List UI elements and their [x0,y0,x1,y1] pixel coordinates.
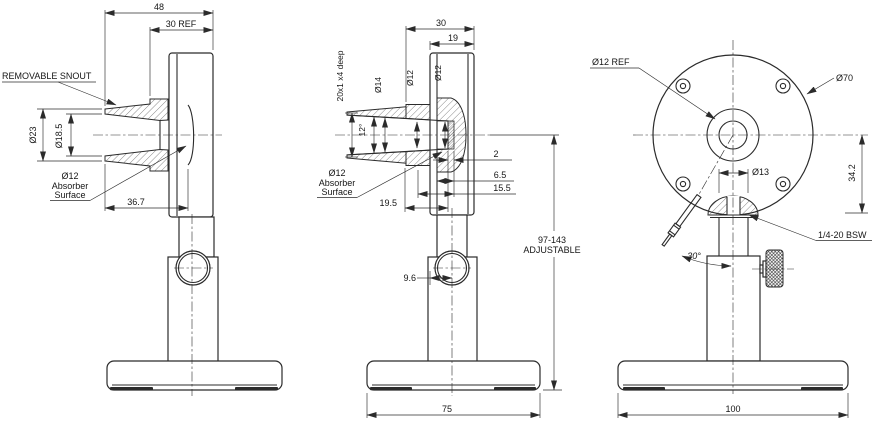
dim-post-dia-label: Ø13 [752,167,769,177]
snout-section-top [105,99,168,121]
dim-absorber-depth-label: 36.7 [127,197,145,207]
dim-total-depth-label: 30 [436,18,446,28]
base-foot [235,387,278,390]
dim-body-depth-label: 30 REF [166,19,197,29]
front-view: Ø13 34.2 30° 100 Ø12 REF Ø70 1/4-20 BSW [590,40,872,418]
clamp-front [707,256,760,361]
snout-section-bottom [105,150,168,172]
body-dia-callout-label: Ø70 [836,73,853,83]
dim-dia12-bore-label: Ø12 [405,70,415,86]
dim-cable-angle-label: 30° [687,251,701,261]
snout-flange-top [406,105,430,120]
base-foot [801,387,843,390]
mount-thread-label: 1/4-20 BSW [818,230,867,240]
dim-dia12-absorber-label: Ø12 [433,65,443,81]
dim-15-5-label: 15.5 [493,183,511,193]
snout-wall-bottom [347,152,406,164]
absorber-callout-word2: Surface [321,187,352,197]
adjustable-word-label: ADJUSTABLE [523,245,580,255]
dim-dia14-label: Ø14 [373,77,383,93]
mount-screw-slot [727,196,740,216]
base-foot [370,387,412,390]
adjustable-range-label: 97-143 [538,235,566,245]
dim-6-5-label: 6.5 [494,170,507,180]
dim-snout-outer-dia-label: Ø23 [28,126,38,143]
side-view: 48 30 REF Ø23 Ø18.5 36.7 REMOVABLE SNOUT… [2,2,282,396]
drawing-canvas: 48 30 REF Ø23 Ø18.5 36.7 REMOVABLE SNOUT… [0,0,874,426]
dim-taper-angle-label: 12° [357,124,367,137]
section-view: 30 19 20x1 x4 deep 12° Ø14 Ø12 Ø12 2 [317,18,581,418]
side-view-geometry [105,53,282,390]
dim-9-6-label: 9.6 [403,273,416,283]
absorber-callout-word2: Surface [54,190,85,200]
dim-snout-inner-dia-label: Ø18.5 [54,124,64,149]
technical-drawing: 48 30 REF Ø23 Ø18.5 36.7 REMOVABLE SNOUT… [0,0,874,426]
base-section [367,361,540,390]
base-side [107,361,282,390]
dim-thread-label: 20x1 x4 deep [335,50,345,101]
mount-thread-leader [749,215,816,241]
aperture-callout-label: Ø12 REF [592,57,630,67]
absorber-callout-dia: Ø12 [61,171,78,181]
dim-19-5-label: 19.5 [379,198,397,208]
snout-wall-top [347,107,406,119]
removable-snout-label: REMOVABLE SNOUT [2,71,92,81]
dim-body-label: 19 [448,33,458,43]
base-foot [494,387,536,390]
dim-base-depth-label: 75 [442,404,452,414]
dim-overall-depth-label: 48 [154,2,164,12]
snout-flange-bottom [406,150,430,165]
absorber-callout-dia: Ø12 [328,168,345,178]
dim-center-height-label: 34.2 [847,164,857,182]
dim-base-width-label: 100 [725,404,740,414]
dim-2-label: 2 [493,149,498,159]
knurled-knob [766,250,783,287]
body-dia-leader [807,78,834,94]
base-foot [110,387,153,390]
removable-snout-leader [58,82,116,105]
section-view-geometry [347,53,540,390]
base-foot [623,387,665,390]
